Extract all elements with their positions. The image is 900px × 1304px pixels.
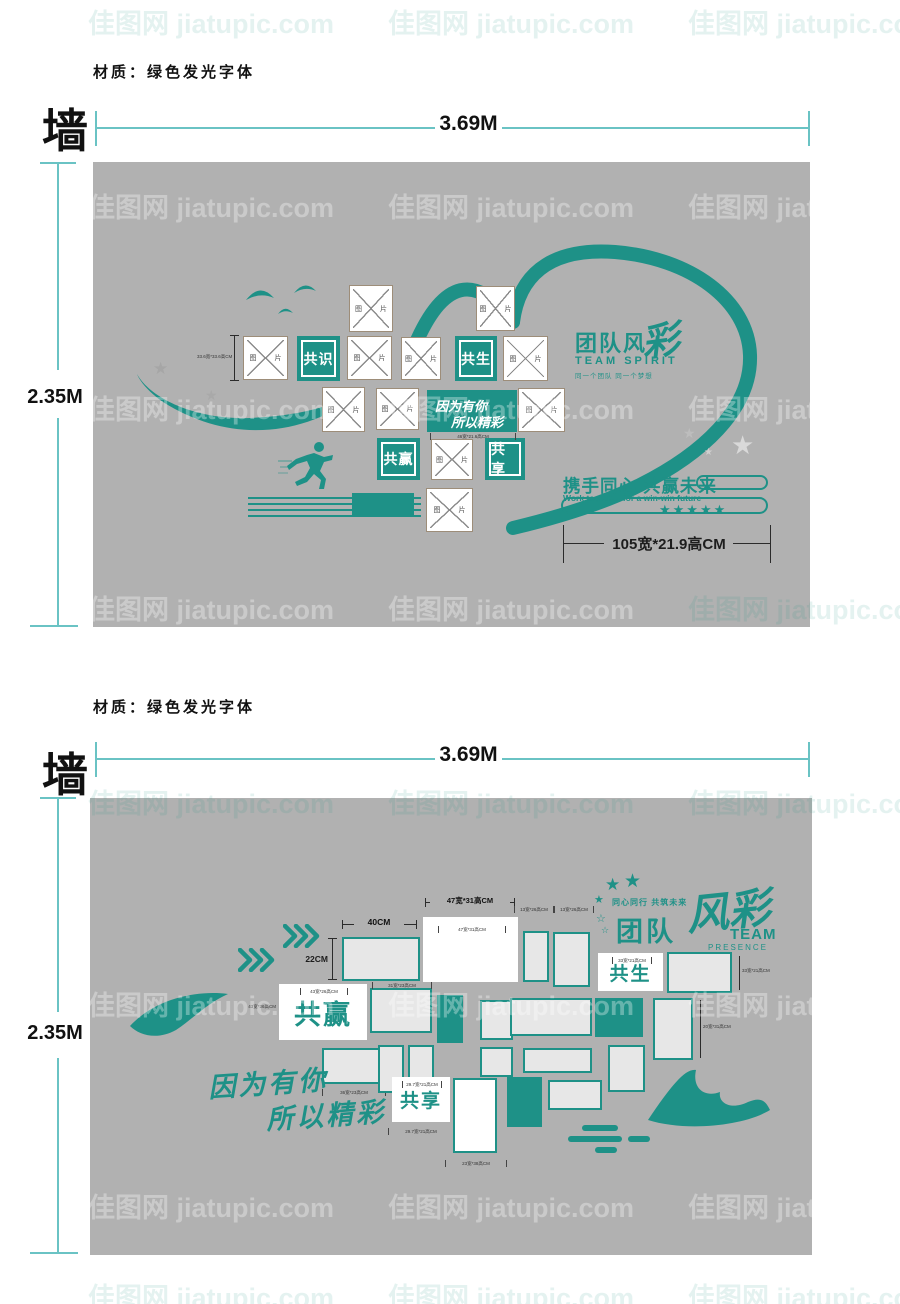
chevron-right-icon: [283, 924, 321, 948]
dim-tick: [328, 938, 337, 939]
dim-line: [733, 543, 770, 544]
five-stars: ★★★★★: [659, 502, 727, 518]
dim-tick: [230, 335, 239, 336]
photo-frame: 图 片: [426, 488, 473, 532]
dim-tick: [770, 525, 771, 563]
photo-frame: [480, 1047, 513, 1077]
wall-panel-2: 40CM 22CM 47宽*31高CM 47宽*31高CM 13宽*26高CM …: [90, 798, 812, 1255]
dim-tick: [808, 111, 810, 146]
section-1: 材质：绿色发光字体 墙 3.69M 2.35M 图 片: [0, 0, 900, 652]
dimension-label: 29.7宽*21高CM: [388, 1128, 454, 1135]
dimension-label: 22CM: [294, 954, 328, 964]
photo-frame: [608, 1045, 645, 1092]
dim-line: [332, 938, 333, 980]
bird-icon: [245, 286, 275, 308]
photo-frame: 图 片: [347, 336, 392, 380]
dim-line: [96, 758, 435, 760]
photo-frame: [523, 1048, 592, 1073]
bottom-dimension: 105宽*21.9高CM: [605, 533, 733, 554]
dimension-label: 33宽*21高CM: [612, 957, 652, 964]
teal-block: [437, 995, 463, 1043]
leaf-shape: [128, 988, 230, 1040]
dim-line: [57, 1058, 59, 1253]
photo-frame: [548, 1080, 602, 1110]
photo-placeholder-label: 图 片: [320, 405, 368, 415]
photo-frame: 图 片: [476, 286, 515, 331]
dash-decoration: [568, 1136, 622, 1142]
photo-frame: [480, 1000, 513, 1040]
dim-line: [502, 758, 808, 760]
teal-block: [507, 1077, 542, 1127]
keyword-label: 共赢: [294, 993, 352, 1032]
photo-frame: 图 片: [243, 336, 288, 380]
photo-frame: 图 片: [518, 388, 565, 432]
dim-tick: [30, 625, 78, 627]
star-icon: ★: [605, 876, 620, 893]
wall-label: 墙: [42, 752, 88, 798]
slogan-box: 因为有你 所以精彩: [427, 390, 517, 432]
height-dimension: 2.35M: [20, 386, 90, 409]
slogan-line2: 所以精彩: [451, 412, 503, 431]
dash-decoration: [628, 1136, 650, 1142]
star-icon: ★: [624, 872, 641, 891]
dimension-label: 31宽*23高CM: [372, 982, 432, 989]
logo-en: TEAM SPIRIT: [575, 355, 678, 367]
dimension-label: 47宽*31高CM: [430, 895, 510, 906]
speed-block: [352, 493, 414, 517]
dim-line: [57, 799, 59, 1012]
photo-frame: [523, 931, 549, 982]
photo-frame: [667, 952, 732, 993]
dim-line: [700, 1000, 701, 1058]
dim-line: [96, 127, 435, 129]
photo-placeholder-label: 图 片: [502, 354, 550, 364]
star-outline-icon: ☆: [596, 914, 606, 925]
dimension-label: 33宽*21高CM: [742, 968, 770, 974]
dim-tick: [328, 979, 337, 980]
dim-tick: [230, 380, 239, 381]
wall-label: 墙: [42, 108, 88, 154]
width-dimension: 3.69M: [435, 743, 502, 767]
photo-placeholder-label: 图 片: [242, 353, 290, 363]
height-dimension: 2.35M: [20, 1022, 90, 1045]
section-2: 材质：绿色发光字体 墙 3.69M 2.35M: [0, 652, 900, 1304]
chevron-right-icon: [238, 948, 276, 972]
star-icon: ★: [205, 388, 218, 402]
keyword-label: 共识: [301, 340, 336, 377]
photo-frame: [342, 937, 420, 981]
photo-frame: [453, 1078, 497, 1153]
photo-frame: [370, 988, 432, 1033]
logo-en: TEAM: [730, 926, 777, 943]
dimension-label: 33.6宽*33.6高CM: [197, 354, 232, 360]
photo-placeholder-label: 图 片: [426, 505, 474, 515]
star-icon: ★: [594, 895, 604, 906]
wall-panel-1: 图 片 图 片 图 片 图 片 图 片 图 片 图 片 图 片 图 片 图 片 …: [93, 162, 810, 627]
photo-frame: 图 片: [376, 388, 419, 430]
star-outline-icon: ☆: [601, 926, 609, 935]
dimension-label: 23宽*38高CM: [445, 1160, 507, 1167]
dim-line: [57, 164, 59, 370]
photo-placeholder-label: 图 片: [472, 304, 520, 314]
photo-frame: [653, 998, 693, 1060]
script-slogan-line2: 所以精彩: [265, 1090, 387, 1137]
dim-tick: [30, 1252, 78, 1254]
dimension-label: 40CM: [354, 917, 404, 927]
dimension-label: 13宽*26高CM: [514, 906, 554, 913]
dim-line: [739, 956, 740, 990]
dimension-label: 13宽*26高CM: [554, 906, 594, 913]
keyword-label: 共生: [459, 340, 493, 377]
logo-en2: PRESENCE: [708, 943, 768, 952]
dimension-label: 47宽*31高CM: [438, 926, 506, 933]
dimension-label: 43宽*26高CM: [222, 1004, 276, 1010]
photo-frame: 图 片: [503, 336, 548, 381]
star-icon: ★: [704, 448, 713, 458]
teal-block: [595, 998, 643, 1037]
photo-placeholder-label: 图 片: [347, 304, 395, 314]
keyword-box-winwin: 共赢: [377, 438, 420, 480]
photo-placeholder-label: 图 片: [397, 354, 445, 364]
photo-frame: 图 片: [322, 387, 365, 432]
dim-tick: [808, 742, 810, 777]
keyword-box-consensus: 共识: [297, 336, 340, 381]
material-note: 材质：绿色发光字体: [93, 696, 255, 717]
dim-line: [234, 335, 235, 381]
width-dimension: 3.69M: [435, 112, 502, 136]
dash-decoration: [595, 1147, 617, 1153]
design-proof-page: 材质：绿色发光字体 墙 3.69M 2.35M 图 片: [0, 0, 900, 1304]
dim-line: [502, 127, 808, 129]
photo-frame: [553, 932, 590, 987]
bird-icon: [293, 282, 317, 298]
dim-tick: [563, 525, 564, 563]
star-icon: ★: [153, 360, 168, 377]
photo-frame: 图 片: [401, 337, 441, 380]
photo-placeholder-label: 图 片: [428, 455, 476, 465]
dimension-label: 43宽*26高CM: [300, 988, 348, 995]
bird-icon: [277, 306, 294, 318]
runner-icon: [278, 440, 336, 490]
dim-line: [57, 418, 59, 626]
keyword-box-symbiosis: 共生: [455, 336, 497, 381]
logo-tagline: 同心同行 共筑未来: [612, 897, 687, 908]
dimension-label: 29.7宽*21高CM: [402, 1081, 442, 1088]
logo-cn: 团队风: [575, 326, 647, 358]
photo-placeholder-label: 图 片: [374, 404, 422, 414]
photo-placeholder-label: 图 片: [346, 353, 394, 363]
dimension-label: 46宽*21.6高CM: [430, 433, 516, 440]
keyword-label: 共享: [400, 1086, 442, 1113]
wave-ribbon-shape: [646, 1062, 772, 1128]
dimension-label: 20宽*31高CM: [703, 1024, 731, 1030]
photo-frame: [322, 1048, 384, 1084]
star-icon: ★: [731, 432, 754, 458]
photo-frame: [510, 998, 592, 1036]
dim-line: [564, 543, 604, 544]
logo-subtitle: 同一个团队 同一个梦想: [575, 370, 653, 380]
photo-frame: 图 片: [431, 439, 473, 480]
photo-placeholder-label: 图 片: [518, 405, 566, 415]
photo-frame: 图 片: [349, 285, 393, 332]
keyword-label: 共享: [489, 442, 521, 476]
logo-cn: 团队: [616, 910, 676, 949]
keyword-label: 共赢: [381, 442, 416, 476]
material-note: 材质：绿色发光字体: [93, 61, 255, 82]
dash-decoration: [582, 1125, 618, 1131]
keyword-box-share: 共享: [485, 438, 525, 480]
star-icon: ★: [683, 426, 696, 440]
